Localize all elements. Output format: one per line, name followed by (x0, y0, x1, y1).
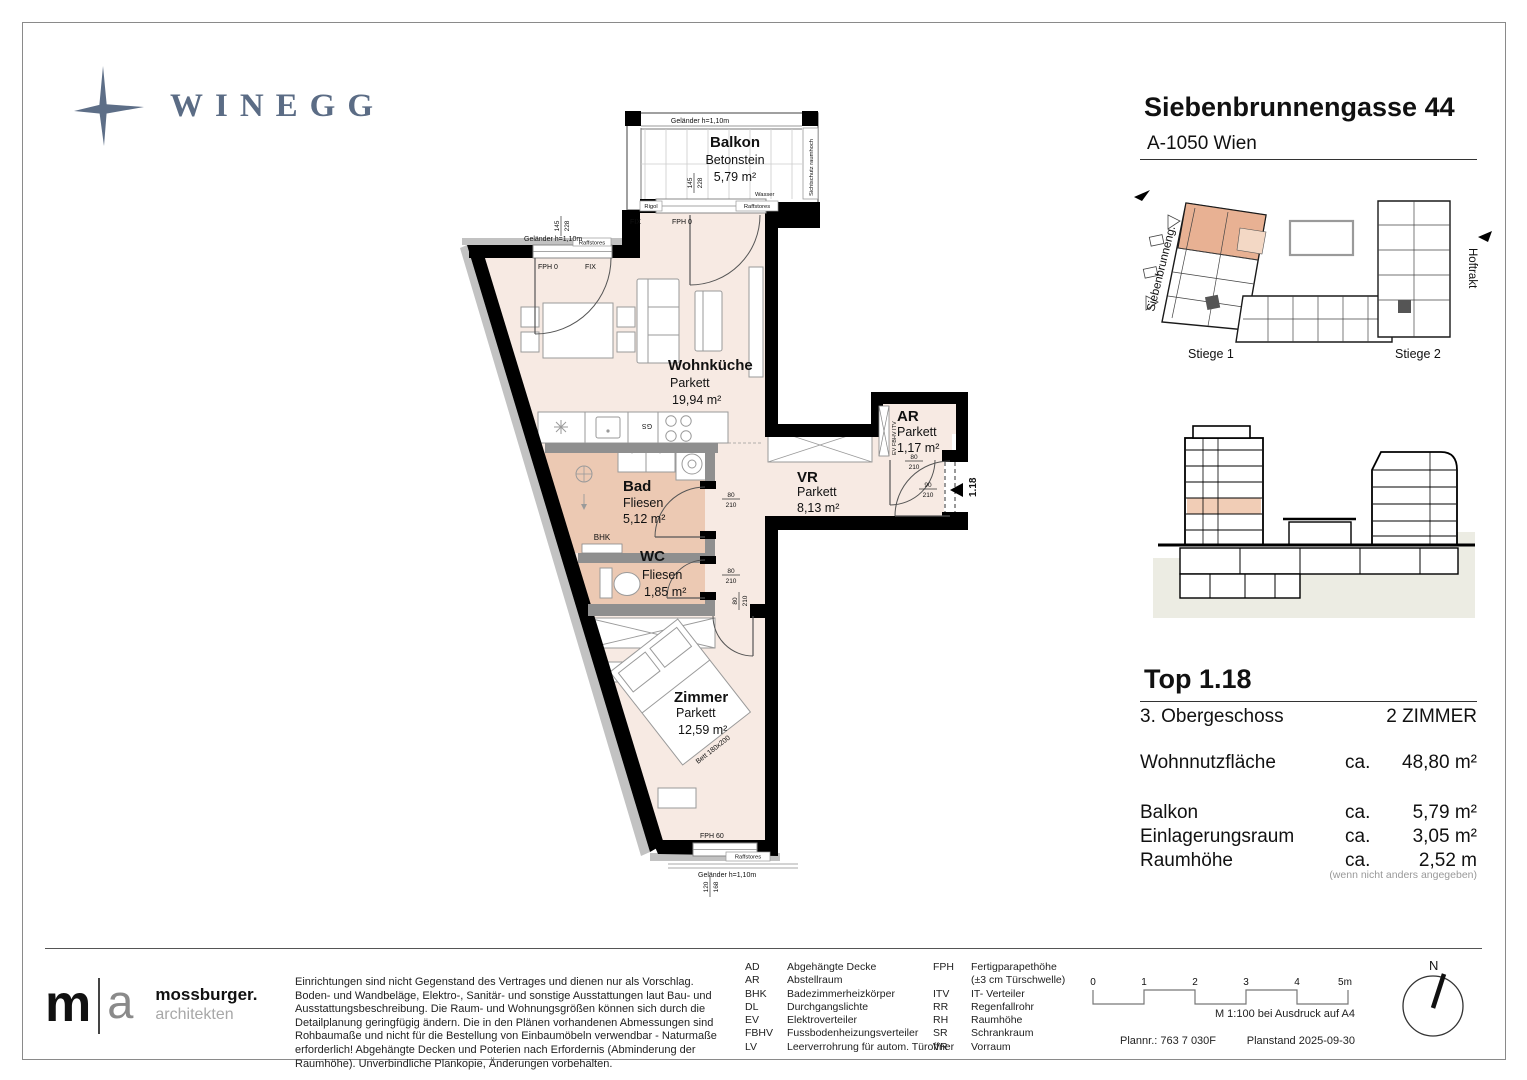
svg-text:145: 145 (687, 177, 694, 188)
svg-text:210: 210 (726, 502, 737, 509)
kitchen-counter: GS (538, 412, 728, 443)
privacy-screen-label: Sichtschutz raumhoch (809, 139, 815, 196)
svg-text:Balkon: Balkon (710, 134, 760, 151)
legend-desc: Fussbodenheizungsverteiler (787, 1027, 918, 1040)
metric-row: Wohnnutzfläche ca. 48,80 m² (1140, 752, 1477, 774)
legend-desc: Leerverrohrung für autom. Türoffner (787, 1041, 954, 1054)
metric-label: Einlagerungsraum (1140, 826, 1345, 848)
siteplan-stiege2-label: Stiege 2 (1395, 347, 1441, 361)
architect-logo: m a mossburger. architekten (45, 978, 257, 1034)
footer-divider (45, 948, 1482, 949)
legend-desc: Abstellraum (787, 974, 842, 987)
fph60-label: FPH 60 (700, 833, 724, 840)
svg-text:Fliesen: Fliesen (642, 568, 682, 582)
legend-abbr: RH (933, 1014, 971, 1027)
dim-bottom-window: 120 168 (703, 877, 720, 897)
project-title: Siebenbrunnengasse 44 (1144, 92, 1455, 123)
svg-text:145: 145 (554, 220, 561, 231)
metric-row: Einlagerungsraum ca. 3,05 m² (1140, 826, 1477, 848)
fph0-balcony-label: FPH 0 (672, 219, 692, 226)
svg-text:Parkett: Parkett (670, 376, 710, 390)
left-railing-label: Geländer h=1,10m (524, 236, 582, 243)
dim-left-window: 145 228 (554, 216, 571, 236)
scale-tick: 0 (1090, 977, 1096, 988)
legend-abbr: LV (745, 1041, 787, 1054)
legend-abbr: SR (933, 1027, 971, 1040)
architect-logo-a: a (107, 978, 133, 1025)
unit-divider (1140, 701, 1477, 702)
svg-text:80: 80 (732, 597, 739, 605)
north-label: N (1429, 958, 1438, 973)
bottom-railing-label: Geländer h=1,10m (698, 872, 756, 879)
svg-text:80: 80 (727, 568, 735, 575)
legend-abbr: BHK (745, 988, 787, 1001)
legend-desc: Durchgangslichte (787, 1001, 868, 1014)
metric-row: Balkon ca. 5,79 m² (1140, 802, 1477, 824)
legend-abbr: FPH (933, 961, 971, 974)
svg-text:228: 228 (697, 177, 704, 188)
metric-value: 3,05 m² (1385, 826, 1477, 848)
unit-room-count: 2 ZIMMER (1386, 706, 1477, 728)
metric-ca: ca. (1345, 826, 1385, 848)
scale-tick: 2 (1192, 977, 1198, 988)
architect-logo-m: m (45, 978, 91, 1030)
svg-text:19,94 m²: 19,94 m² (672, 393, 721, 407)
svg-text:210: 210 (742, 595, 749, 606)
svg-text:5,12 m²: 5,12 m² (623, 512, 665, 526)
svg-text:8,13 m²: 8,13 m² (797, 501, 839, 515)
svg-text:Betonstein: Betonstein (705, 153, 764, 167)
entry-opening: 1.18 (944, 462, 979, 512)
legend-abbr: AD (745, 961, 787, 974)
floor-plan: GS (440, 85, 1020, 915)
rigol-label: Rigol (644, 204, 657, 210)
legend-desc: Raumhöhe (971, 1014, 1022, 1027)
unit-top-number: Top 1.18 (1144, 664, 1252, 695)
legend-desc: (±3 cm Türschwelle) (971, 974, 1065, 987)
svg-text:1,17 m²: 1,17 m² (897, 441, 939, 455)
architect-sub: architekten (155, 1005, 257, 1024)
winegg-star-icon (70, 64, 150, 148)
scale-tick: 5m (1338, 977, 1352, 988)
north-compass: N (1395, 952, 1475, 1042)
plan-date: Planstand 2025-09-30 (1240, 1035, 1355, 1047)
legend-desc: Schrankraum (971, 1027, 1033, 1040)
svg-text:Parkett: Parkett (676, 706, 716, 720)
unit-marker: 1.18 (968, 477, 979, 497)
svg-text:VR: VR (797, 469, 818, 486)
scale-note: M 1:100 bei Ausdruck auf A4 (1200, 1008, 1355, 1020)
scale-bar: 0 1 2 3 4 5m (1085, 972, 1365, 1010)
svg-text:168: 168 (713, 881, 720, 892)
svg-text:12,59 m²: 12,59 m² (678, 723, 727, 737)
svg-text:228: 228 (564, 220, 571, 231)
svg-text:Fliesen: Fliesen (623, 496, 663, 510)
legend-left: ADAbgehängte Decke ARAbstellraum BHKBade… (745, 961, 933, 1054)
legend-desc: Fertigparapethöhe (971, 961, 1057, 974)
legend-abbr: VR (933, 1041, 971, 1054)
sofa (637, 279, 722, 363)
svg-text:1,85 m²: 1,85 m² (644, 585, 686, 599)
architect-name: mossburger. (155, 986, 257, 1005)
legend-abbr: RR (933, 1001, 971, 1014)
disclaimer-text: Einrichtungen sind nicht Gegenstand des … (295, 976, 723, 1071)
legend-abbr (933, 974, 971, 987)
wasser-label: Wasser (755, 192, 775, 198)
building-section (1150, 418, 1490, 648)
dishwasher-label: GS (642, 422, 652, 429)
architect-logo-divider (98, 978, 100, 1034)
raffstores-bottom-label: Raffstores (735, 855, 761, 861)
svg-text:210: 210 (923, 492, 934, 499)
svg-text:Zimmer: Zimmer (674, 689, 728, 706)
legend-desc: Elektroverteiler (787, 1014, 857, 1027)
fix-balcony-label: FIX (630, 219, 641, 226)
legend-desc: Vorraum (971, 1041, 1011, 1054)
metric-ca: ca. (1345, 802, 1385, 824)
raffstores-top-label: Raffstores (744, 204, 770, 210)
siteplan-stiege1-label: Stiege 1 (1188, 347, 1234, 361)
plan-number: Plannr.: 763 7 030F (1120, 1035, 1216, 1047)
svg-text:Bad: Bad (623, 478, 651, 495)
metric-value: 48,80 m² (1385, 752, 1477, 774)
fix-left-label: FIX (585, 264, 596, 271)
brand-logo: WINEGG (170, 88, 385, 125)
svg-text:80: 80 (727, 492, 735, 499)
bhk-label: BHK (594, 533, 611, 542)
room-label-balkon: Balkon Betonstein 5,79 m² (705, 134, 764, 184)
legend-abbr: EV (745, 1014, 787, 1027)
metric-value: 5,79 m² (1385, 802, 1477, 824)
scale-tick: 1 (1141, 977, 1147, 988)
metric-label: Wohnnutzfläche (1140, 752, 1345, 774)
legend-desc: IT- Verteiler (971, 988, 1025, 1001)
site-plan: Siebenbrunneng. Hoftrakt Stiege 1 Stiege… (1125, 182, 1505, 377)
legend-desc: Abgehängte Decke (787, 961, 876, 974)
fph0-left-label: FPH 0 (538, 264, 558, 271)
legend-abbr: DL (745, 1001, 787, 1014)
svg-text:120: 120 (703, 881, 710, 892)
legend-desc: Badezimmerheizkörper (787, 988, 895, 1001)
svg-text:Wohnküche: Wohnküche (668, 357, 753, 374)
svg-text:Parkett: Parkett (897, 425, 937, 439)
svg-text:210: 210 (909, 464, 920, 471)
legend-right: FPHFertigparapethöhe (±3 cm Türschwelle)… (933, 961, 1083, 1054)
scale-tick: 3 (1243, 977, 1249, 988)
raffstores-left-label: Raffstores (579, 241, 605, 247)
balcony-railing-label: Geländer h=1,10m (671, 118, 729, 125)
legend-abbr: FBHV (745, 1027, 787, 1040)
svg-text:Parkett: Parkett (797, 485, 837, 499)
metric-label: Balkon (1140, 802, 1345, 824)
unit-note: (wenn nicht anders angegeben) (1140, 869, 1477, 881)
svg-text:210: 210 (726, 578, 737, 585)
unit-floor: 3. Obergeschoss (1140, 706, 1284, 728)
svg-text:80: 80 (910, 454, 918, 461)
legend-desc: Regenfallrohr (971, 1001, 1034, 1014)
legend-abbr: AR (745, 974, 787, 987)
svg-text:90: 90 (924, 482, 932, 489)
legend-abbr: ITV (933, 988, 971, 1001)
metric-ca: ca. (1345, 752, 1385, 774)
project-city: A-1050 Wien (1147, 133, 1257, 155)
scale-tick: 4 (1294, 977, 1300, 988)
svg-text:5,79 m²: 5,79 m² (714, 170, 756, 184)
siteplan-hoftrakt-label: Hoftrakt (1466, 248, 1478, 289)
svg-text:AR: AR (897, 408, 919, 425)
header-divider (1140, 159, 1477, 160)
svg-text:WC: WC (640, 548, 665, 565)
